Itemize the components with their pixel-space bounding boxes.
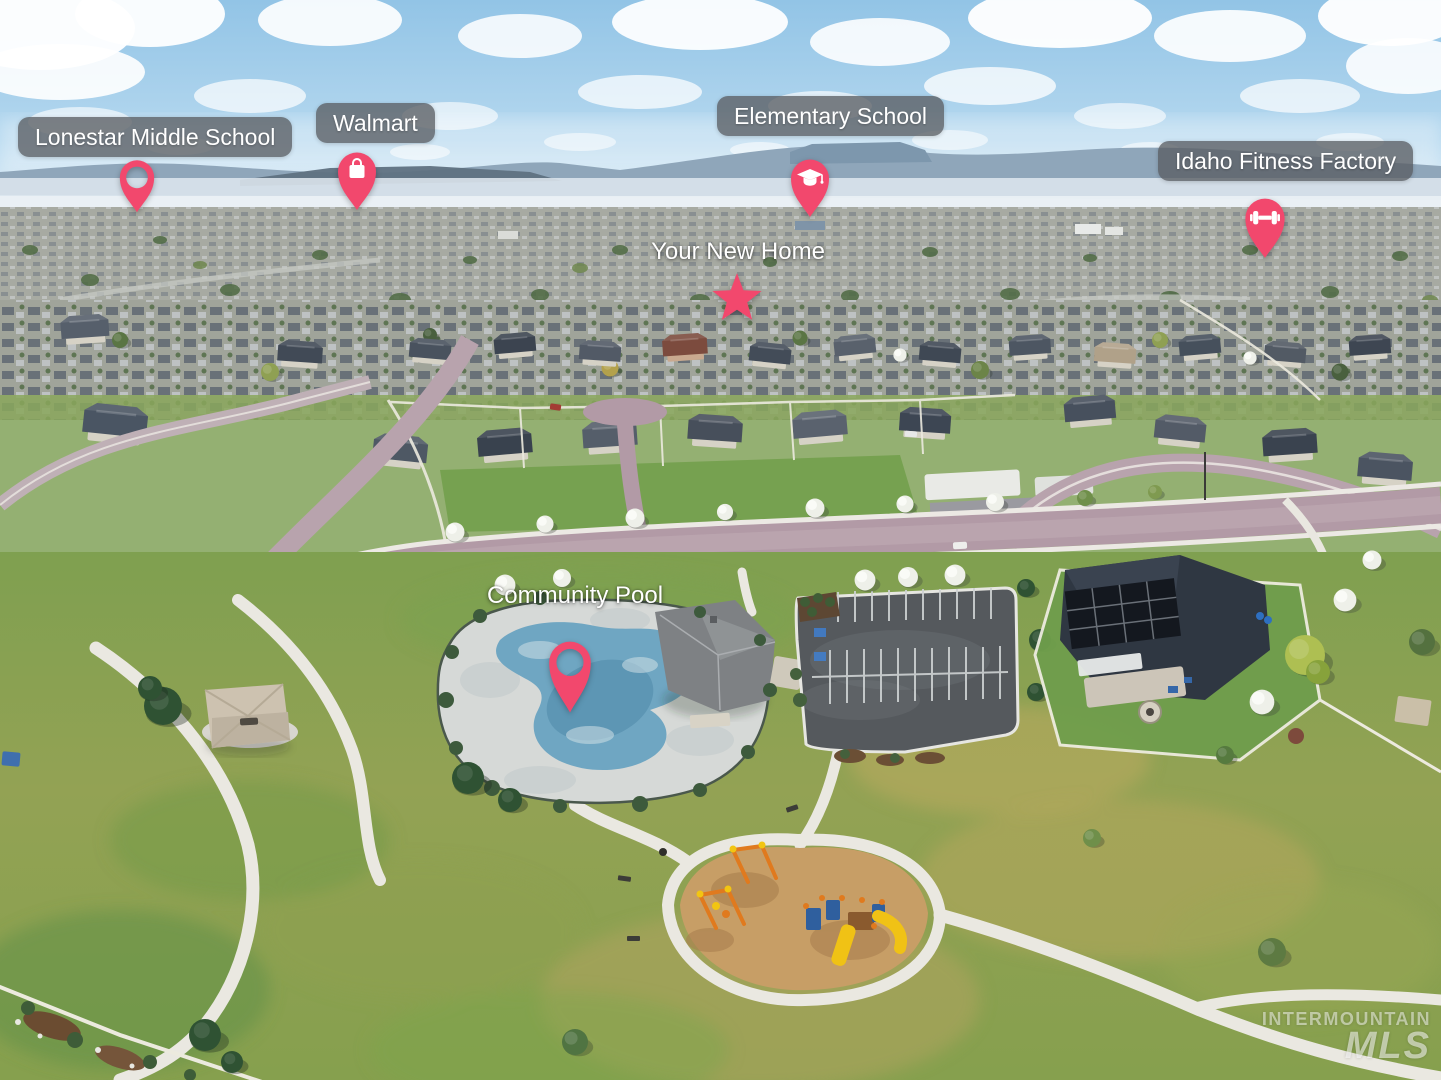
elementary-school-pin [786,157,834,219]
label-lonestar-middle-school: Lonestar Middle School [18,117,292,157]
walmart-pin [333,150,381,212]
label-text: Your New Home [651,238,825,265]
label-text: Walmart [333,110,418,136]
label-walmart: Walmart [316,103,435,143]
label-idaho-fitness-factory: Idaho Fitness Factory [1158,141,1413,181]
mls-watermark: INTERMOUNTAIN MLS [1262,1009,1431,1062]
label-text: Community Pool [487,582,663,609]
your-new-home-star [708,271,766,327]
star-icon [712,273,761,320]
label-text: Lonestar Middle School [35,124,275,150]
label-text: Idaho Fitness Factory [1175,148,1396,174]
label-your-new-home: Your New Home [651,238,825,266]
aerial-photo: Lonestar Middle School Walmart Elementar… [0,0,1441,1080]
fitness-pin [1240,196,1290,260]
label-elementary-school: Elementary School [717,96,944,136]
location-ring-pin-icon [549,642,591,713]
community-pool-pin [545,636,595,716]
label-community-pool: Community Pool [487,582,663,610]
lonestar-pin [115,158,159,214]
label-text: Elementary School [734,103,927,129]
location-ring-pin-icon [120,160,154,212]
watermark-line2: MLS [1262,1030,1431,1062]
